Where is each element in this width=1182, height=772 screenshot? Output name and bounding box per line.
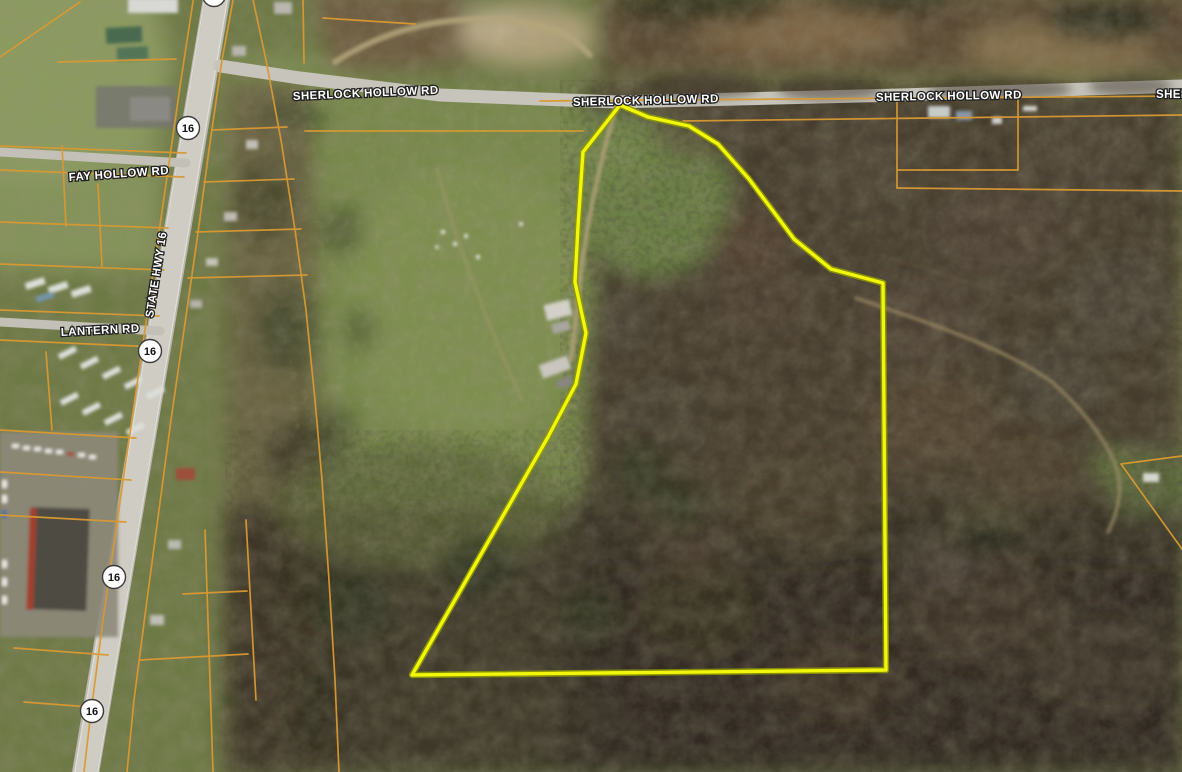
svg-text:16: 16 (86, 706, 98, 718)
svg-text:16: 16 (208, 0, 220, 2)
road-label-sherlock-4-partial: SHERLOCK HOLLOW RD (1156, 89, 1182, 101)
route-shield-16-b: 16 (139, 340, 162, 363)
map-viewport[interactable]: SHERLOCK HOLLOW RD SHERLOCK HOLLOW RD SH… (0, 0, 1182, 772)
route-shield-16-c: 16 (103, 566, 126, 589)
road-label-sherlock-3: SHERLOCK HOLLOW RD (876, 89, 1022, 104)
route-shield-16-a: 16 (177, 117, 200, 140)
route-shield-16-d: 16 (81, 700, 104, 723)
svg-text:16: 16 (144, 346, 156, 358)
svg-text:16: 16 (182, 123, 194, 135)
terrain-layer (0, 0, 1182, 772)
svg-text:16: 16 (108, 572, 120, 584)
map-canvas[interactable]: SHERLOCK HOLLOW RD SHERLOCK HOLLOW RD SH… (0, 0, 1182, 772)
